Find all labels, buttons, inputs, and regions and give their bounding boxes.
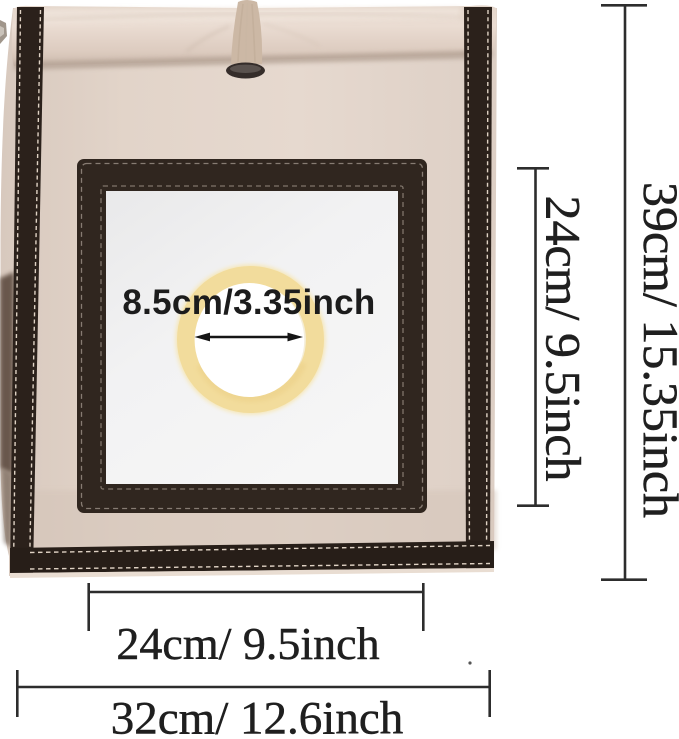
svg-text:32cm/ 12.6inch: 32cm/ 12.6inch (111, 693, 403, 739)
svg-text:8.5cm/3.35inch: 8.5cm/3.35inch (122, 283, 375, 322)
svg-text:39cm/ 15.35inch: 39cm/ 15.35inch (633, 182, 679, 518)
svg-text:24cm/ 9.5inch: 24cm/ 9.5inch (116, 618, 379, 669)
svg-text:24cm/ 9.5inch: 24cm/ 9.5inch (536, 195, 592, 481)
